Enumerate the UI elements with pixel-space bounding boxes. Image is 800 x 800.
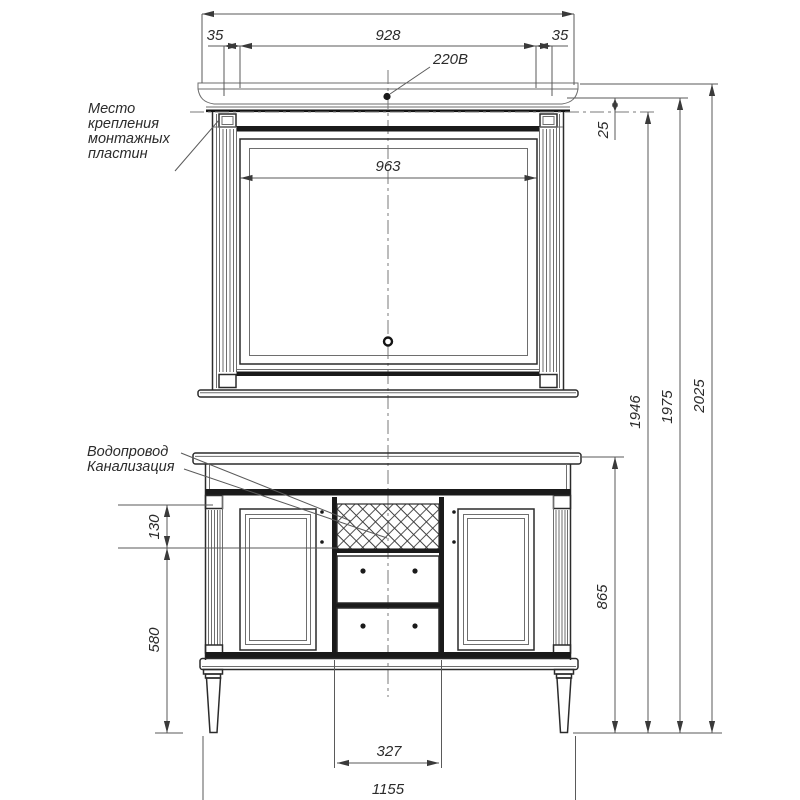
svg-text:монтажных: монтажных	[88, 131, 171, 147]
dim-height-mid: 1975	[659, 390, 676, 424]
vanity-pilaster-right	[556, 510, 568, 645]
power-label: 220В	[432, 51, 468, 68]
pilaster-base-right	[540, 375, 557, 388]
technical-drawing-page: 35 928 35 220В 963 Место крепления монта…	[0, 0, 800, 800]
dim-panel-height: 130	[146, 514, 163, 540]
fluted-pilaster-left	[220, 127, 237, 372]
plinth	[200, 659, 578, 670]
leg-left	[204, 670, 223, 733]
svg-text:Место: Место	[88, 101, 135, 117]
dim-plate-offset: 25	[595, 121, 612, 139]
door-left	[240, 509, 316, 650]
fluted-pilaster-right	[540, 127, 557, 372]
svg-text:Канализация: Канализация	[87, 459, 175, 475]
dim-drawer-span: 327	[376, 743, 402, 760]
touch-sensor-dot	[384, 338, 392, 346]
countertop	[193, 453, 581, 464]
dim-vanity-height: 865	[594, 584, 611, 610]
dim-clearance-height: 580	[146, 627, 163, 653]
svg-text:крепления: крепления	[88, 116, 159, 132]
pilaster-base-left	[219, 375, 236, 388]
mirror-front-view	[190, 83, 656, 397]
dimension-lines: 35 928 35 220В 963 Место крепления монта…	[87, 14, 722, 800]
svg-text:Водопровод: Водопровод	[87, 444, 168, 460]
svg-text:пластин: пластин	[88, 146, 148, 162]
dim-offset-left: 35	[207, 27, 224, 44]
door-right	[458, 509, 534, 650]
leg-right	[555, 670, 574, 733]
dim-height-total: 2025	[691, 379, 708, 414]
vanity-mirror-drawing: 35 928 35 220В 963 Место крепления монта…	[0, 0, 800, 800]
vanity-front-view	[193, 453, 581, 733]
dim-vanity-width: 1155	[372, 781, 405, 798]
plumbing-leader-1	[181, 453, 351, 521]
dim-height-to-plates: 1946	[627, 395, 644, 429]
power-connection-dot	[383, 93, 390, 100]
dim-span-top: 928	[375, 27, 401, 44]
power-leader-line	[390, 67, 430, 94]
vanity-pilaster-left	[209, 510, 221, 645]
dim-offset-right: 35	[552, 27, 569, 44]
dim-mirror-inner-width: 963	[375, 158, 401, 175]
